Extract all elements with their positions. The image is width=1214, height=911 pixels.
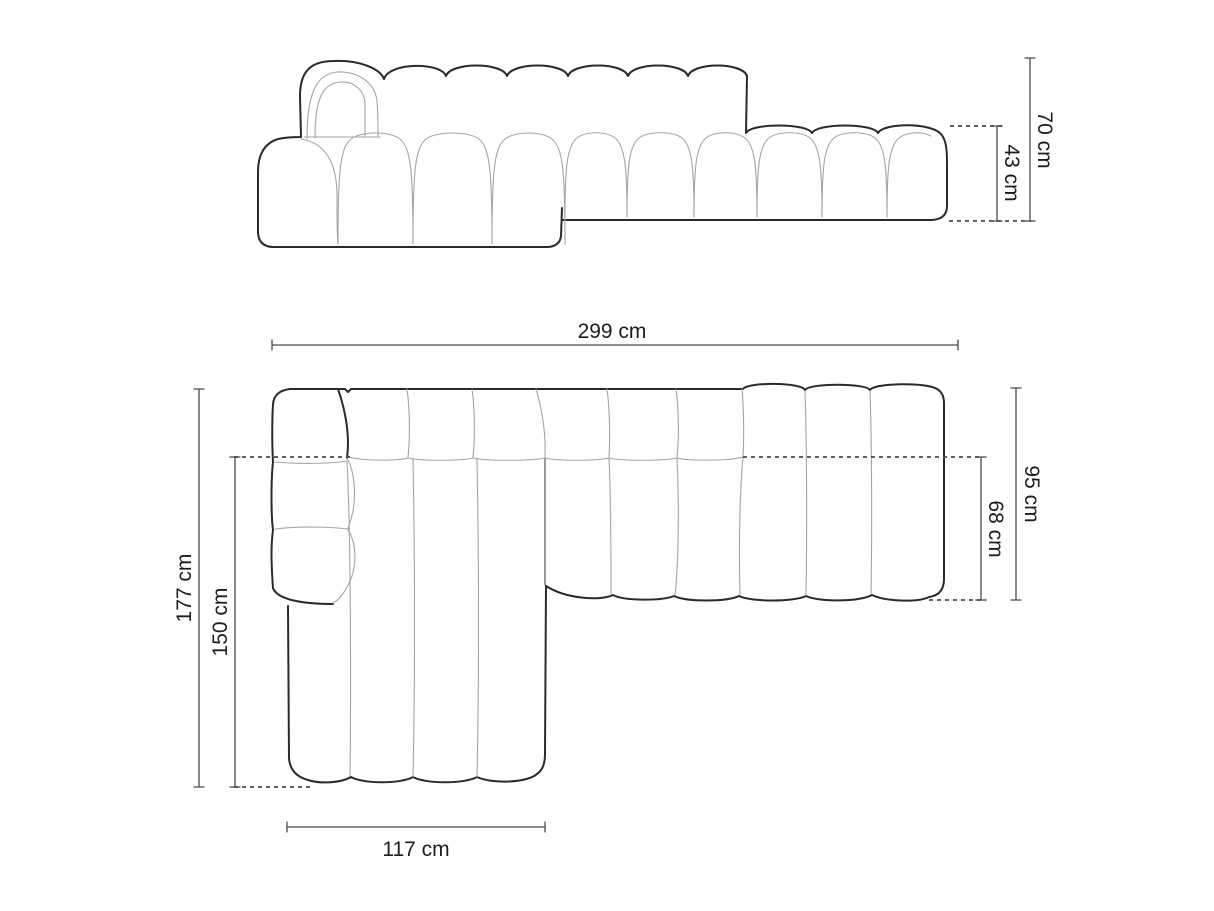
seat-seam: [413, 458, 415, 777]
plan-chaise-length-label: 150 cm: [209, 588, 232, 657]
seat-arch: [565, 133, 627, 217]
seat-seam: [347, 461, 351, 776]
plan-chaise-bottom: [288, 606, 537, 782]
seat-seam: [805, 391, 807, 595]
seat-arch: [338, 133, 413, 244]
plan-right-depth-label: 95 cm: [1020, 465, 1043, 522]
top-view-dimensions: [194, 340, 1021, 832]
front-view-outline: [258, 61, 947, 247]
seat-arch: [757, 133, 822, 217]
backrest-seam: [472, 389, 474, 457]
corner-module-seam: [301, 139, 338, 244]
seat-seam: [870, 391, 872, 594]
plan-arm-seam: [338, 389, 348, 458]
seat-arch: [694, 133, 757, 217]
top-view: 299 cm 177 cm 150 cm 95 cm 68 cm 117 cm: [173, 320, 1043, 861]
arm-innermost-arc: [315, 82, 365, 138]
plan-seat-depth-label: 68 cm: [984, 500, 1007, 557]
front-silhouette-back: [384, 66, 947, 221]
plan-chaise-width-label: 117 cm: [382, 838, 449, 861]
seat-seam: [739, 457, 743, 595]
seat-seam: [675, 458, 678, 595]
plan-arm-bottom: [273, 588, 333, 604]
seat-arch: [413, 133, 492, 244]
arm-segment-seam: [275, 461, 347, 463]
plan-total-width-label: 299 cm: [578, 320, 647, 343]
seat-seam: [609, 458, 611, 594]
backrest-seam: [407, 389, 409, 457]
front-view: 70 cm 43 cm: [258, 58, 1056, 247]
front-view-seams: [301, 72, 931, 244]
plan-total-depth-label: 177 cm: [173, 554, 196, 623]
seat-arch: [887, 133, 931, 217]
backrest-seam: [536, 389, 545, 457]
plan-arm-left-edge: [272, 389, 291, 588]
plan-chaise-right-edge: [537, 586, 546, 774]
backrest-seam: [607, 389, 610, 457]
front-silhouette-left: [258, 61, 562, 247]
backrest-seam: [742, 389, 744, 457]
sofa-dimensions-diagram: 70 cm 43 cm: [0, 0, 1214, 911]
dim-line-chaise-width: [287, 822, 545, 832]
arm-segment-bulge: [333, 530, 355, 603]
arm-segment-seam: [275, 527, 349, 529]
plan-silhouette-main: [290, 384, 944, 601]
front-total-height-label: 70 cm: [1033, 111, 1056, 168]
top-view-seams: [275, 389, 872, 777]
seat-seam: [477, 458, 479, 777]
seat-arch: [822, 133, 887, 217]
backrest-seam: [676, 389, 678, 457]
front-seat-height-label: 43 cm: [1000, 144, 1023, 201]
seat-arch: [492, 133, 565, 244]
seat-arch: [627, 133, 694, 217]
dim-line-right-depth: [1011, 388, 1021, 600]
top-view-outline: [272, 384, 945, 783]
